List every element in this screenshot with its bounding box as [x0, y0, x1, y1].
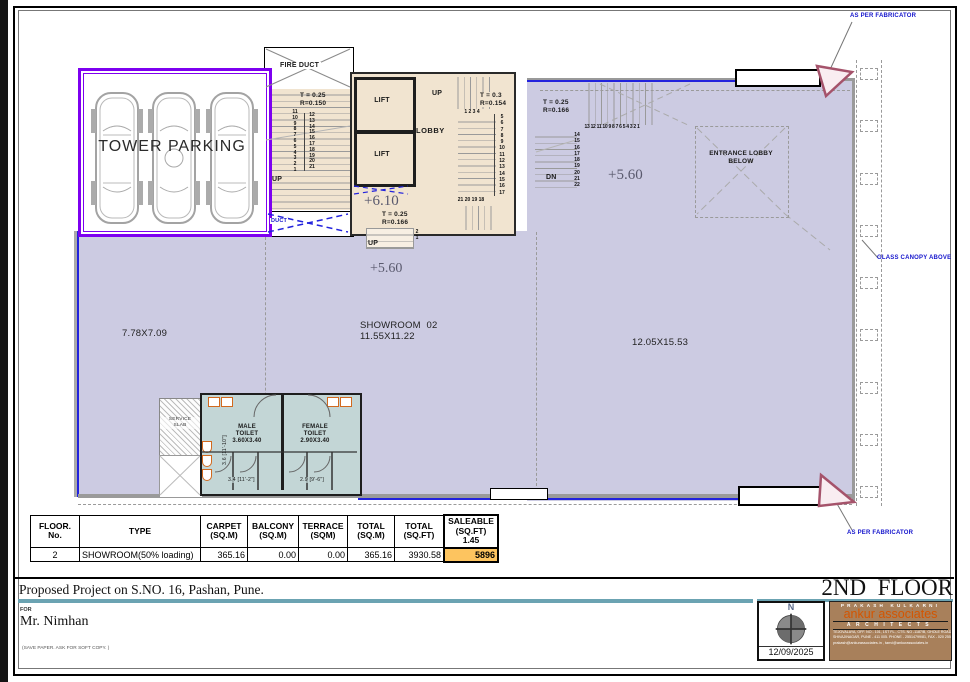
col-header-terrace: TERRACE (SQM)	[299, 515, 348, 548]
cell-floor-no: 2	[31, 548, 80, 562]
table-row: 2 SHOWROOM(50% loading) 365.16 0.00 0.00…	[31, 548, 499, 562]
lift-2-box	[354, 131, 416, 187]
address-line-3: prakash@ankurassociates.in , tanvi@ankur…	[833, 640, 948, 646]
project-title: Proposed Project on S.NO. 16, Pashan, Pu…	[19, 582, 264, 598]
stair-left-tr: T = 0.25 R=0.150	[300, 92, 326, 107]
cell-type: SHOWROOM(50% loading)	[80, 548, 201, 562]
page-edge-bar	[0, 0, 8, 682]
dim-right-label: 12.05X15.53	[632, 337, 688, 348]
stair-lobby-row-bottom: 21 20 19 18	[446, 198, 496, 204]
mullion-box-bottom-2	[738, 486, 826, 506]
canopy-segment	[860, 225, 878, 237]
stair-right-top-run	[583, 83, 653, 125]
service-open-below-box	[159, 455, 203, 498]
fire-duct-label: FIRE DUCT	[278, 62, 321, 69]
lift-1-label: LIFT	[354, 97, 410, 104]
stair-mid-col: 2 1	[412, 230, 422, 242]
level-lobby-label: +6.10	[364, 193, 399, 210]
cell-balcony: 0.00	[248, 548, 299, 562]
level-right-label: +5.60	[608, 167, 643, 184]
fabricator-note-top: AS PER FABRICATOR	[850, 13, 916, 19]
stair-right-dn: DN	[546, 174, 557, 181]
cell-total-sqft: 3930.58	[395, 548, 445, 562]
col-header-balcony: BALCONY (SQ.M)	[248, 515, 299, 548]
entrance-lobby-box	[695, 126, 789, 218]
lift-1-box	[354, 77, 416, 133]
mullion-box-bottom-1	[490, 488, 548, 500]
toilet-divider-wall	[281, 395, 284, 490]
col-header-floor: FLOOR. No.	[31, 515, 80, 548]
for-label: FOR	[20, 607, 32, 613]
floor-title: 2ND FLOOR	[758, 575, 953, 601]
car-icon	[90, 89, 144, 227]
bottom-dashed-line	[78, 504, 852, 505]
car-icon	[205, 89, 259, 227]
stair-lobby-tr: T = 0.3 R=0.154	[480, 92, 506, 107]
architect-block: PRAKASH KULKARNI ankur associates ARCHIT…	[829, 601, 952, 661]
sink-icon	[327, 397, 339, 407]
stair-mid-tr: T = 0.25 R=0.166	[382, 211, 408, 226]
fabricator-triangle-bottom	[816, 472, 858, 512]
urinal-icon	[202, 469, 212, 481]
canopy-segment	[860, 173, 878, 185]
north-compass-icon	[774, 612, 808, 646]
service-slab-label: SERVICE SLAB	[160, 417, 200, 429]
tower-parking-label: TOWER PARKING	[82, 138, 262, 156]
cell-total-sqm: 365.16	[348, 548, 395, 562]
showroom-label: SHOWROOM 02 11.55X11.22	[360, 320, 490, 342]
fabricator-note-bottom: AS PER FABRICATOR	[847, 530, 913, 536]
canopy-segment	[860, 277, 878, 289]
lift-2-label: LIFT	[354, 151, 410, 158]
sink-icon	[340, 397, 352, 407]
col-header-carpet: CARPET (SQ.M)	[201, 515, 248, 548]
duct-label: DUCT	[270, 218, 288, 224]
mullion-box-top	[735, 69, 821, 87]
stair-left-col-b: 12 13 14 15 16 17 18 19 20 21	[304, 113, 319, 171]
canopy-segment	[860, 120, 878, 132]
entrance-lobby-label: ENTRANCE LOBBY BELOW	[695, 150, 787, 166]
table-header-row: FLOOR. No. TYPE CARPET (SQ.M) BALCONY (S…	[31, 515, 499, 548]
urinal-icon	[202, 455, 212, 467]
stair-lobby-up: UP	[432, 90, 442, 97]
title-teal-bar	[18, 599, 753, 603]
female-toilet-label: FEMALE TOILET 2.90X3.40	[290, 424, 340, 445]
stair-right-col: 14 15 16 17 18 19 20 21 22	[570, 132, 584, 189]
north-label: N	[759, 603, 823, 612]
duct-box	[264, 211, 354, 237]
fabricator-triangle-top	[814, 60, 856, 100]
canopy-segment	[860, 382, 878, 394]
zone-dashed-divider-2	[536, 232, 537, 496]
stair-right-tr: T = 0.25 R=0.166	[543, 99, 569, 114]
stair-lobby-bottom-run	[460, 206, 494, 230]
firm-name: ankur associates	[833, 608, 948, 622]
left-glass-line	[77, 231, 79, 497]
car-icon	[147, 89, 201, 227]
stair-lobby-row-top: 1 2 3 4	[450, 110, 494, 116]
sink-icon	[208, 397, 220, 407]
cell-carpet: 365.16	[201, 548, 248, 562]
canopy-segment	[860, 486, 878, 498]
canopy-segment	[860, 329, 878, 341]
stair-left-up: UP	[272, 176, 282, 183]
date-label: 12/09/2025	[759, 646, 823, 658]
cell-terrace: 0.00	[299, 548, 348, 562]
col-header-type: TYPE	[80, 515, 201, 548]
drawing-sheet: TOWER PARKING FIRE DUCT DUCT LIFT LIFT L…	[0, 0, 970, 682]
toilet-dim-male: 3.4 [11'-2"]	[228, 477, 255, 483]
area-statement-table: FLOOR. No. TYPE CARPET (SQ.M) BALCONY (S…	[30, 514, 499, 563]
sink-icon	[221, 397, 233, 407]
cell-saleable: 5896	[444, 548, 498, 562]
stair-right-row-top: 13 12 11 10 9 8 7 6 5 4 3 2 1	[567, 125, 657, 131]
glass-canopy-note: GLASS CANOPY ABOVE	[877, 255, 951, 261]
stair-left-col-a: 11 10 9 8 7 6 5 4 3 2 1	[288, 110, 302, 174]
north-arrow-block: N 12/09/2025	[757, 601, 825, 661]
col-header-total-sqft: TOTAL (SQ.FT)	[395, 515, 445, 548]
client-name: Mr. Nimhan	[20, 614, 88, 630]
fire-duct-box	[264, 47, 354, 91]
toilet-dim-female: 2.9 [9'-6"]	[300, 477, 324, 483]
stair-mid-up: UP	[368, 240, 378, 247]
stair-lobby-down-run	[458, 116, 496, 196]
paper-note: (SAVE PAPER. ASK FOR SOFT COPY. )	[22, 646, 109, 651]
col-header-total-sqm: TOTAL (SQ.M)	[348, 515, 395, 548]
dim-left-label: 7.78X7.09	[122, 328, 167, 339]
urinal-icon	[202, 441, 212, 453]
col-header-saleable: SALEABLE (SQ.FT) 1.45	[444, 515, 498, 548]
level-center-label: +5.60	[370, 261, 402, 277]
canopy-segment	[860, 434, 878, 446]
architects-label: ARCHITECTS	[833, 622, 948, 630]
lobby-label: LOBBY	[416, 126, 445, 135]
top-glass-line	[527, 80, 739, 82]
canopy-segment	[860, 68, 878, 80]
stair-lobby-col: 5 6 7 8 9 10 11 12 13 14 15 16 17	[494, 114, 509, 196]
glass-canopy-strip	[856, 60, 882, 506]
toilet-dim-depth: 3.6 [11'-10"]	[222, 435, 228, 465]
male-toilet-label: MALE TOILET 3.60X3.40	[222, 424, 272, 445]
